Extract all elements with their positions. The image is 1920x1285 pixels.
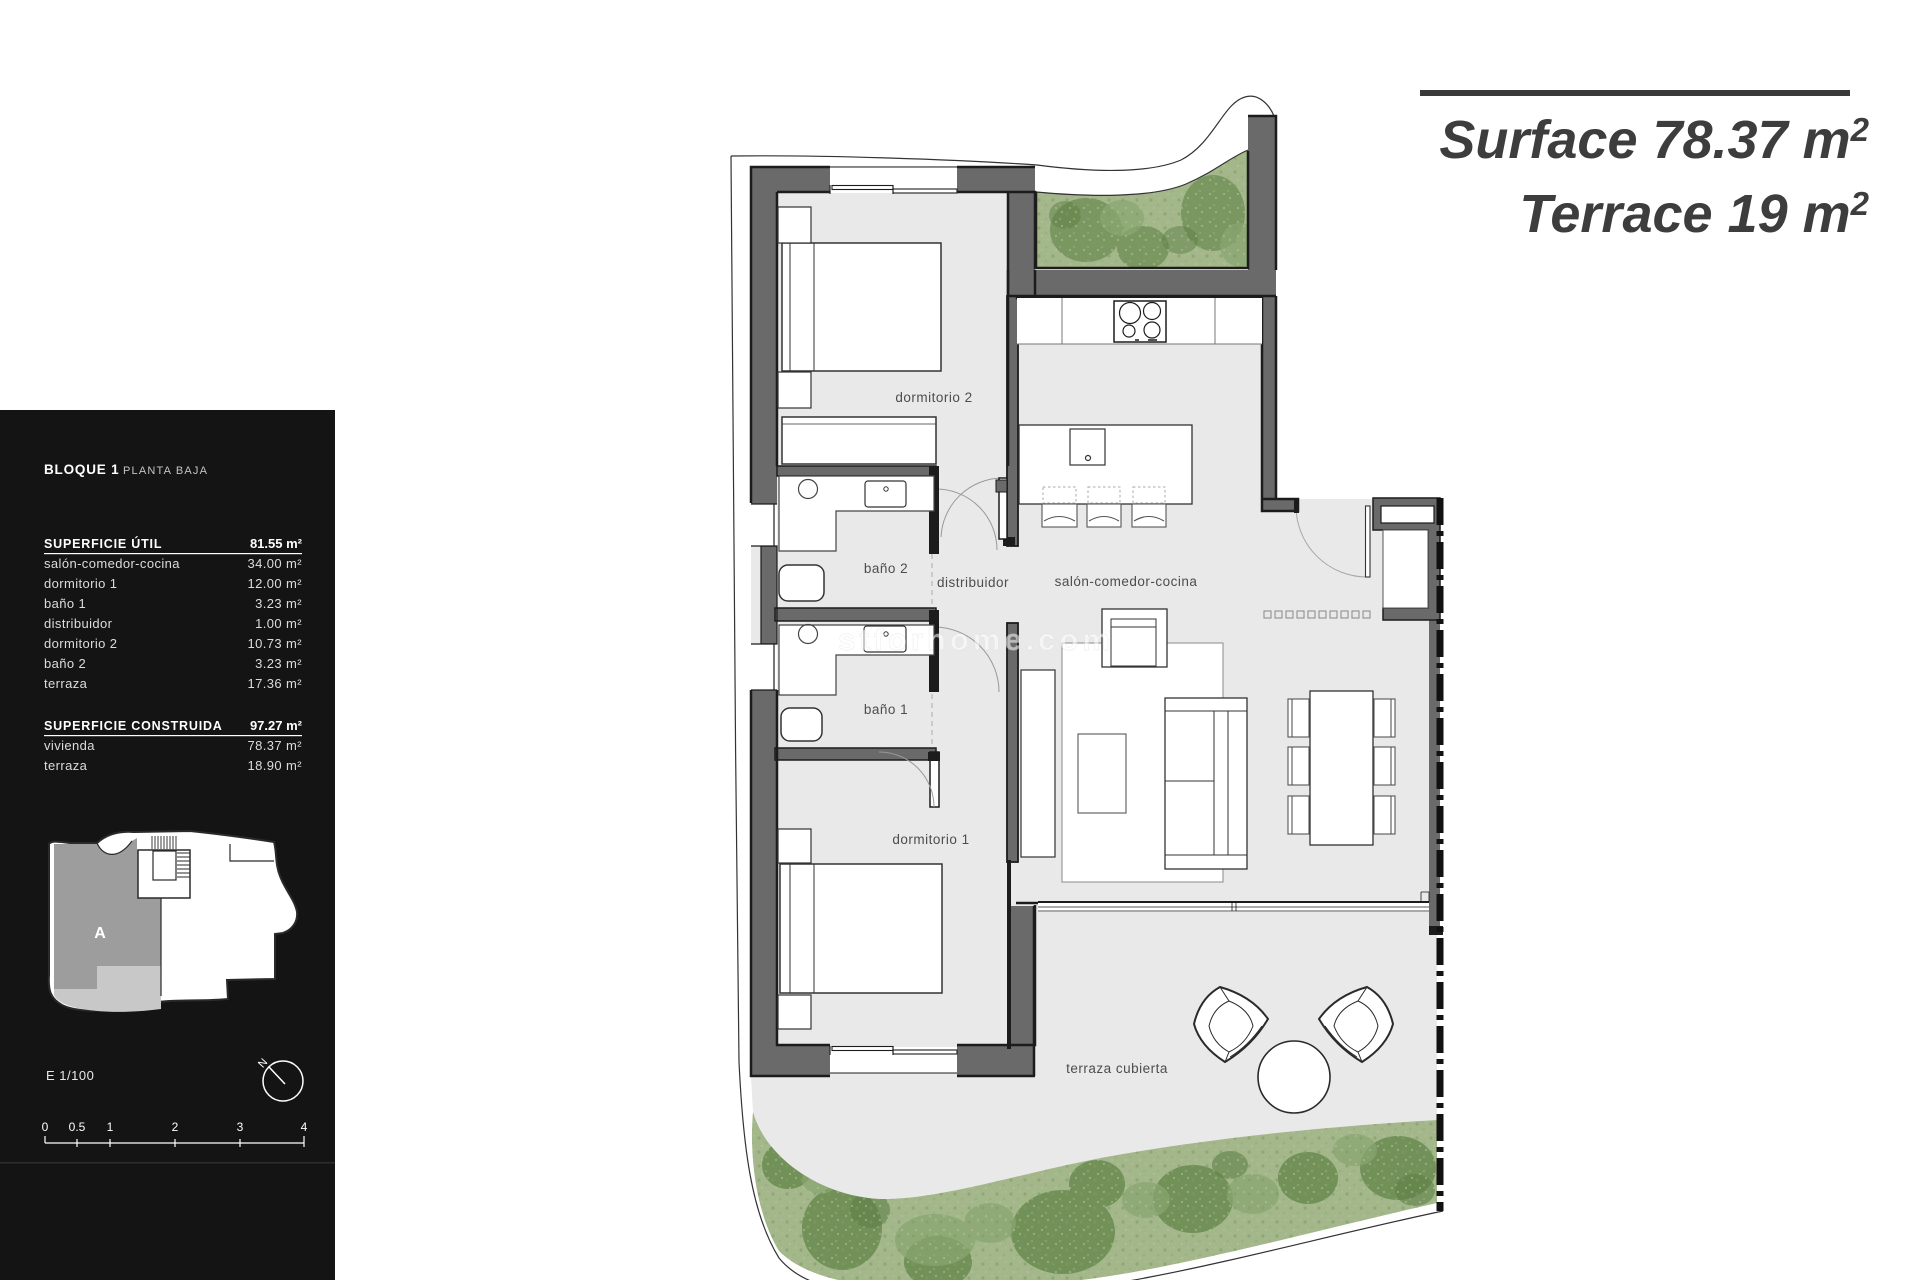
svg-text:PLANTA BAJA: PLANTA BAJA [123, 465, 208, 477]
svg-text:10.73 m²: 10.73 m² [247, 636, 302, 651]
svg-text:18.90 m²: 18.90 m² [247, 758, 302, 773]
svg-text:baño 2: baño 2 [864, 561, 908, 576]
svg-text:terraza: terraza [44, 676, 88, 691]
svg-text:salón-comedor-cocina: salón-comedor-cocina [44, 556, 180, 571]
svg-text:81.55 m²: 81.55 m² [250, 536, 303, 551]
svg-text:1: 1 [107, 1120, 114, 1134]
svg-text:dormitorio 2: dormitorio 2 [895, 390, 972, 405]
svg-text:3.23 m²: 3.23 m² [255, 656, 302, 671]
svg-text:4: 4 [301, 1120, 308, 1134]
svg-text:97.27 m²: 97.27 m² [250, 718, 303, 733]
svg-text:Surface 78.37 m2: Surface 78.37 m2 [1439, 110, 1869, 170]
svg-text:SUPERFICIE CONSTRUIDA: SUPERFICIE CONSTRUIDA [44, 719, 223, 733]
svg-text:12.00 m²: 12.00 m² [247, 576, 302, 591]
svg-text:baño 2: baño 2 [44, 656, 86, 671]
svg-text:salón-comedor-cocina: salón-comedor-cocina [1055, 574, 1198, 589]
svg-text:0.5: 0.5 [69, 1120, 86, 1134]
svg-text:baño 1: baño 1 [864, 702, 908, 717]
svg-text:distribuidor: distribuidor [937, 575, 1009, 590]
svg-text:17.36 m²: 17.36 m² [247, 676, 302, 691]
svg-text:E 1/100: E 1/100 [46, 1068, 94, 1083]
svg-text:terraza cubierta: terraza cubierta [1066, 1061, 1168, 1076]
svg-text:3: 3 [237, 1120, 244, 1134]
svg-text:3.23 m²: 3.23 m² [255, 596, 302, 611]
svg-text:terraza: terraza [44, 758, 88, 773]
svg-text:0: 0 [42, 1120, 49, 1134]
svg-text:SUPERFICIE ÚTIL: SUPERFICIE ÚTIL [44, 536, 162, 551]
svg-text:34.00 m²: 34.00 m² [247, 556, 302, 571]
svg-text:Terrace 19 m2: Terrace 19 m2 [1519, 184, 1869, 244]
svg-text:vivienda: vivienda [44, 738, 95, 753]
svg-text:1.00 m²: 1.00 m² [255, 616, 302, 631]
svg-text:distribuidor: distribuidor [44, 616, 113, 631]
svg-text:stforhome.com: stforhome.com [838, 622, 1114, 657]
svg-text:dormitorio 2: dormitorio 2 [44, 636, 117, 651]
svg-text:BLOQUE 1: BLOQUE 1 [44, 462, 119, 477]
svg-text:dormitorio 1: dormitorio 1 [892, 832, 969, 847]
svg-text:A: A [94, 925, 106, 942]
svg-text:baño 1: baño 1 [44, 596, 86, 611]
svg-text:dormitorio 1: dormitorio 1 [44, 576, 117, 591]
svg-text:78.37 m²: 78.37 m² [247, 738, 302, 753]
svg-text:2: 2 [172, 1120, 179, 1134]
